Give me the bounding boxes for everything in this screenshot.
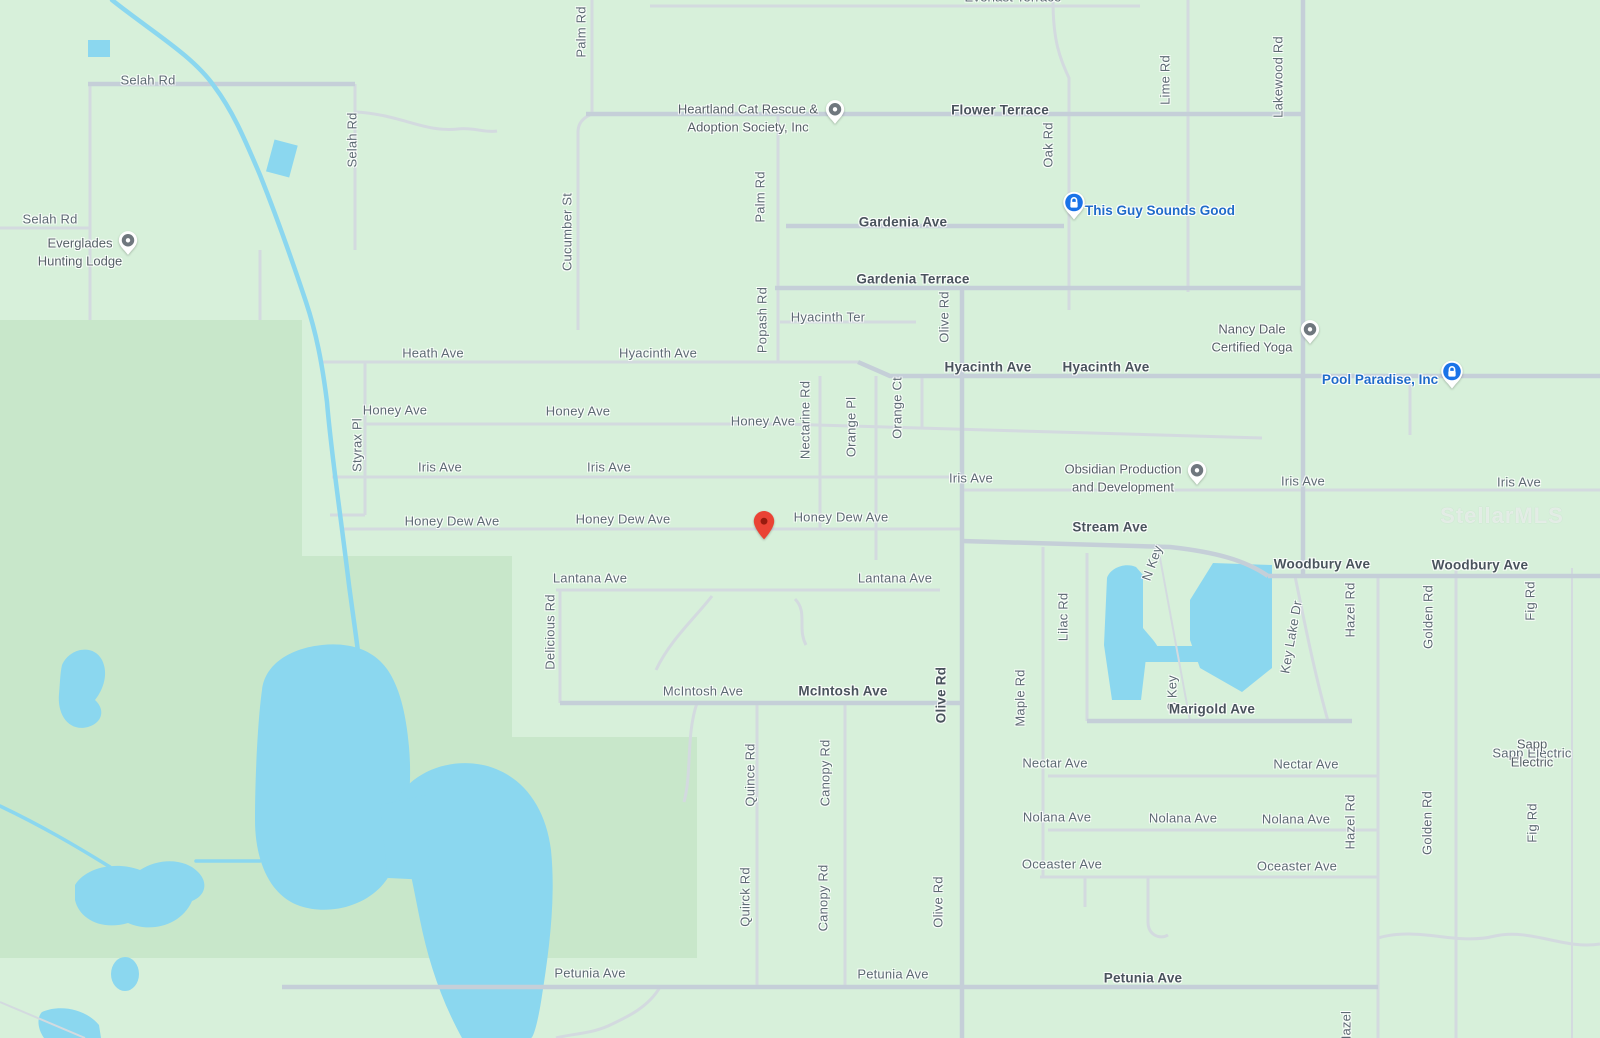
heartland-cat-rescue-label[interactable]: Heartland Cat Rescue & Adoption Society,… [678, 100, 818, 135]
nancy-dale-certified-yoga-marker-pin-icon[interactable] [1299, 319, 1321, 350]
map-canvas[interactable]: Selah RdSelah RdSelah RdPalm RdEverlast … [0, 0, 1600, 1038]
pool-paradise-inc-marker-badge-icon[interactable] [1439, 360, 1465, 395]
dropped-pin-icon[interactable] [751, 510, 778, 546]
obsidian-production-marker-pin-icon[interactable] [1186, 460, 1208, 491]
this-guy-sounds-good-marker-badge-icon[interactable] [1061, 191, 1087, 226]
everglades-hunting-lodge-label[interactable]: Everglades Hunting Lodge [38, 234, 123, 269]
map-terrain-layer [0, 0, 1600, 1038]
pool-paradise-inc-label[interactable]: Pool Paradise, Inc [1322, 371, 1438, 389]
obsidian-production-label[interactable]: Obsidian Production and Development [1064, 460, 1181, 495]
sapp-electric-label[interactable]: Sapp Electric [1498, 735, 1566, 770]
this-guy-sounds-good-label[interactable]: This Guy Sounds Good [1085, 202, 1235, 220]
heartland-cat-rescue-marker-pin-icon[interactable] [824, 99, 846, 130]
nancy-dale-certified-yoga-label[interactable]: Nancy Dale Certified Yoga [1212, 320, 1293, 355]
